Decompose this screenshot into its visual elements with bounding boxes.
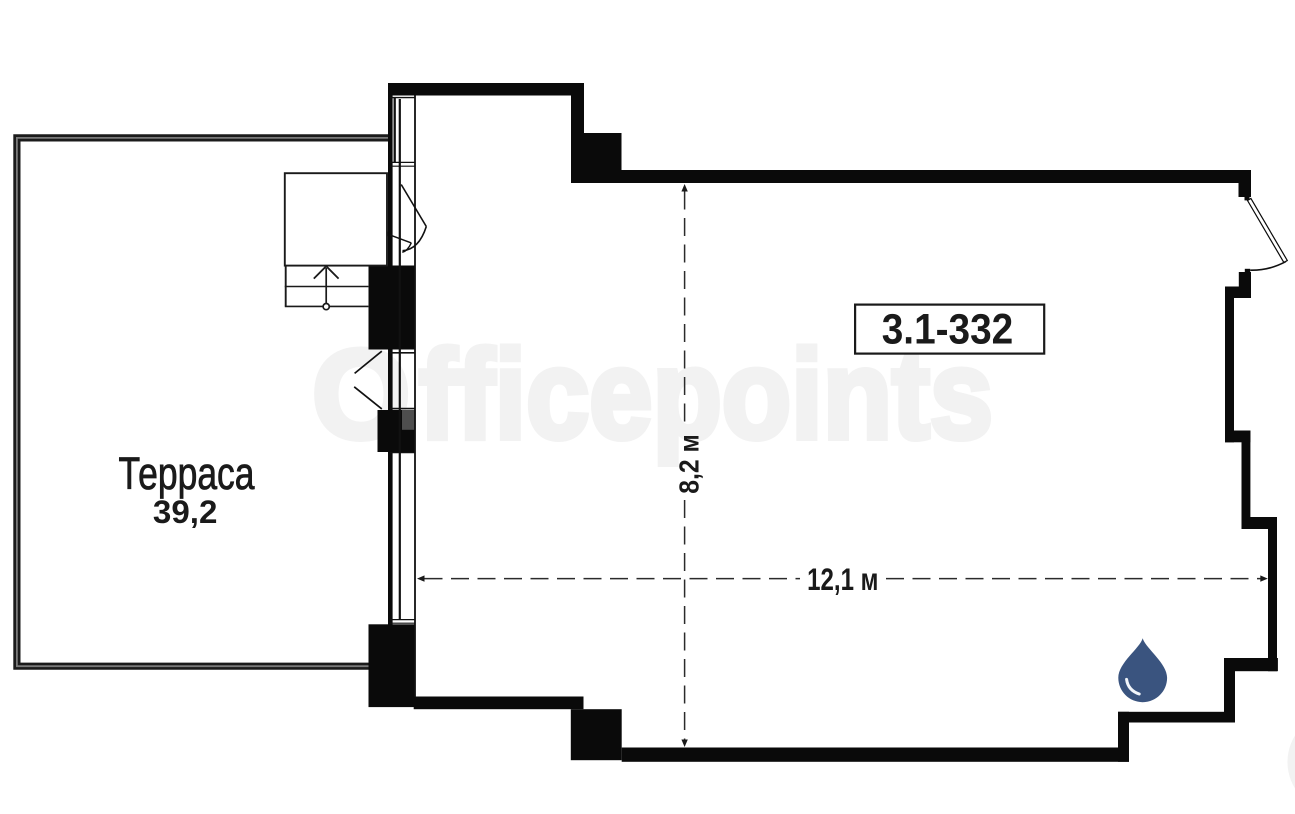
svg-text:39,2: 39,2	[153, 494, 218, 530]
svg-text:12,1 м: 12,1 м	[807, 561, 878, 597]
svg-text:Терраса: Терраса	[119, 448, 256, 499]
svg-text:3.1-332: 3.1-332	[882, 306, 1014, 353]
svg-text:8,2 м: 8,2 м	[674, 434, 705, 494]
